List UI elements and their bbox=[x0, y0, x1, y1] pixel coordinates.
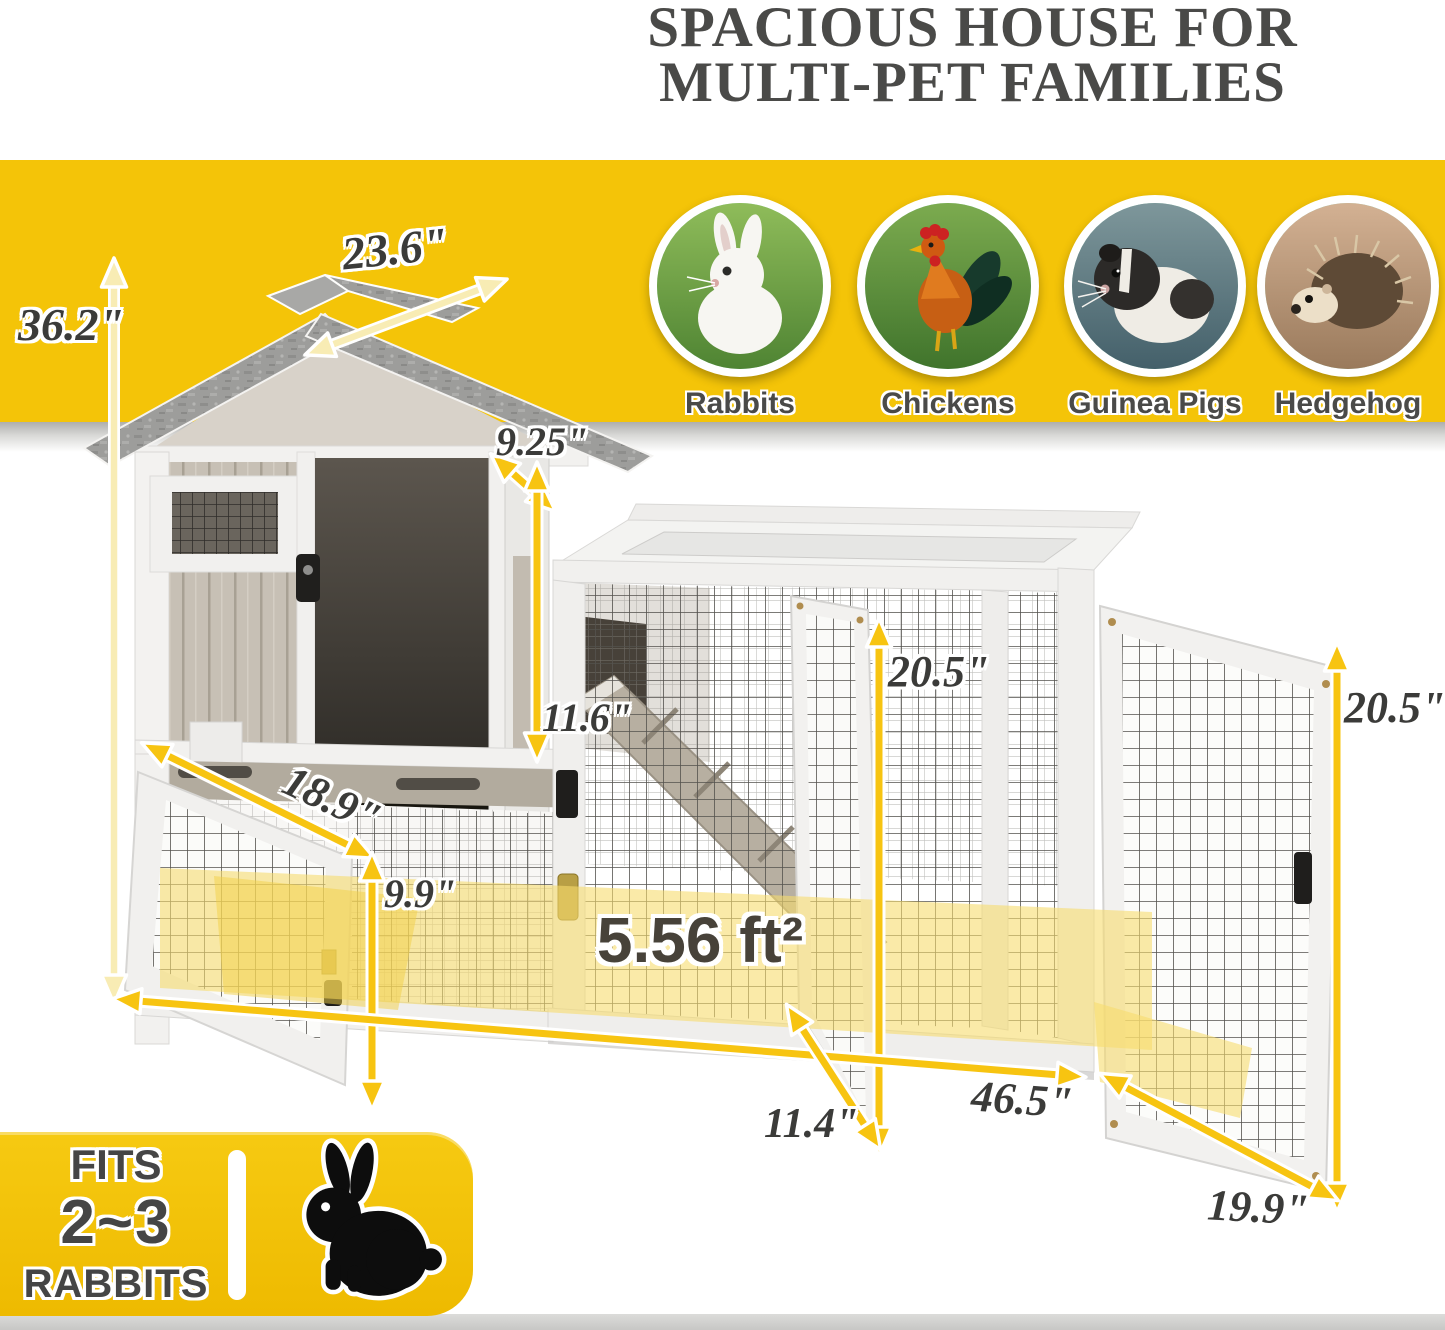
title-line1: SPACIOUS HOUSE FOR bbox=[500, 0, 1445, 55]
wire-run bbox=[548, 504, 1140, 1080]
pet-label: Rabbits bbox=[640, 387, 840, 421]
pet-hedgehog: Hedgehog bbox=[1248, 195, 1445, 421]
pet-label: Chickens bbox=[848, 387, 1048, 421]
floor-area-label: 5.56 ft² bbox=[597, 903, 803, 977]
door-gold-latch-icon bbox=[322, 950, 336, 974]
fits-badge-text: FITS 2~3 RABBITS bbox=[14, 1138, 218, 1304]
door-black-knob-icon bbox=[324, 980, 342, 1006]
hedgehog-photo-icon bbox=[1257, 195, 1439, 377]
pet-guinea-pigs: Guinea Pigs bbox=[1055, 195, 1255, 421]
dim-upper-door-width: 9.25" bbox=[496, 418, 588, 465]
upper-door-latch-icon bbox=[296, 554, 320, 602]
title-line2: MULTI-PET FAMILIES bbox=[500, 55, 1445, 110]
run-gold-latch-icon bbox=[558, 874, 578, 920]
dim-right-door-width: 19.9" bbox=[1206, 1179, 1310, 1235]
middle-run-door bbox=[791, 596, 882, 1144]
upper-window bbox=[150, 476, 300, 572]
badge-divider bbox=[228, 1150, 246, 1300]
dim-total-height: 36.2" bbox=[18, 298, 124, 351]
guinea-pig-photo-icon bbox=[1064, 195, 1246, 377]
dim-right-door-height: 20.5" bbox=[1344, 682, 1445, 733]
rooster-photo-icon bbox=[857, 195, 1039, 377]
background-divider bbox=[0, 422, 1445, 452]
dim-middle-door-width: 11.4" bbox=[764, 1100, 859, 1148]
dim-lower-height: 9.9" bbox=[384, 870, 456, 917]
fits-badge: FITS 2~3 RABBITS bbox=[0, 1132, 473, 1316]
dim-run-inner-height: 20.5" bbox=[888, 646, 989, 697]
pet-chickens: Chickens bbox=[848, 195, 1048, 421]
rabbit-silhouette-icon bbox=[256, 1138, 466, 1310]
dim-upper-door-height: 11.6" bbox=[542, 694, 632, 741]
right-run-door bbox=[1100, 606, 1338, 1192]
upper-door-leaf bbox=[505, 456, 549, 872]
rabbit-photo-icon bbox=[649, 195, 831, 377]
pet-label: Hedgehog bbox=[1248, 387, 1445, 421]
badge-line1: FITS bbox=[14, 1144, 218, 1186]
right-door-latch-icon bbox=[1294, 852, 1312, 904]
footer-divider bbox=[0, 1314, 1445, 1330]
dim-total-length: 46.5" bbox=[970, 1071, 1075, 1129]
dim-lower-depth: 18.9" bbox=[275, 755, 388, 844]
page-title: SPACIOUS HOUSE FOR MULTI-PET FAMILIES bbox=[500, 0, 1445, 110]
badge-line2: 2~3 bbox=[14, 1192, 218, 1254]
product-infographic: SPACIOUS HOUSE FOR MULTI-PET FAMILIES bbox=[0, 0, 1445, 1330]
pet-label: Guinea Pigs bbox=[1055, 387, 1255, 421]
pet-rabbits: Rabbits bbox=[640, 195, 840, 421]
dim-roof-width: 23.6" bbox=[339, 217, 450, 281]
run-black-latch-icon bbox=[556, 770, 578, 818]
badge-line3: RABBITS bbox=[14, 1264, 218, 1304]
